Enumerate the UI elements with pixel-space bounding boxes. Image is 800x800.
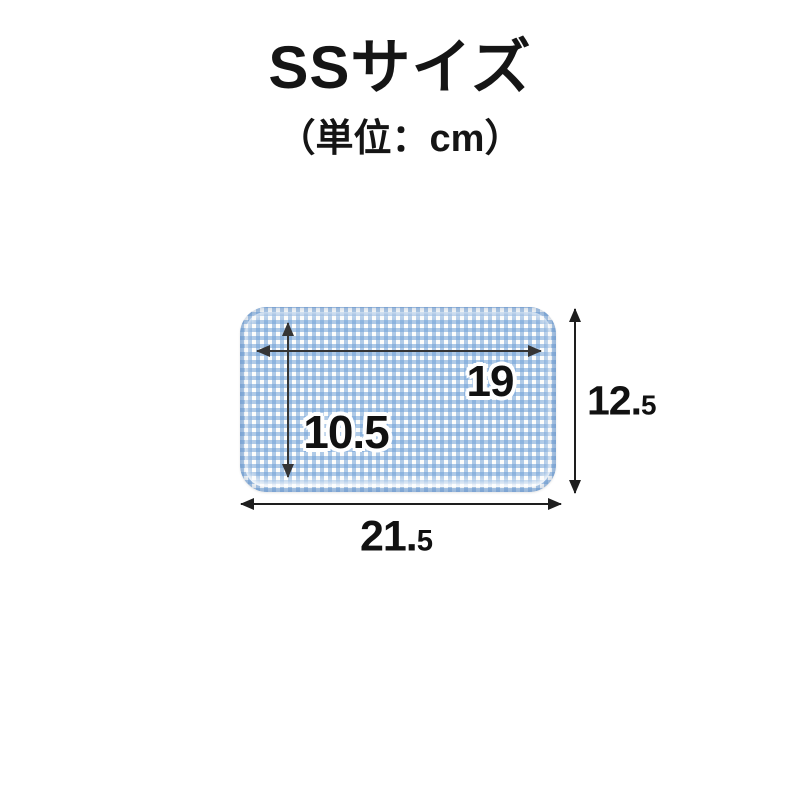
outer-depth-arrow	[574, 309, 576, 493]
outer-depth-label-main: 12.	[587, 378, 641, 424]
outer-width-label: 21.5	[360, 516, 432, 559]
outer-depth-label-decimal: 5	[641, 390, 656, 421]
unit-note: （単位：cm）	[0, 117, 800, 163]
outer-width-arrow	[241, 503, 561, 505]
inner-depth-label: 10.5	[303, 409, 389, 455]
outer-depth-label: 12.5	[587, 381, 656, 422]
size-diagram-page: SSサイズ （単位：cm） 19 10.5 12.5 21.5	[0, 0, 800, 800]
inner-width-label: 19	[467, 360, 514, 404]
inner-depth-arrow	[287, 323, 289, 477]
page-title: SSサイズ	[0, 38, 800, 98]
outer-width-label-main: 21.	[360, 513, 417, 561]
inner-width-arrow	[257, 350, 541, 352]
outer-width-label-decimal: 5	[417, 526, 432, 558]
